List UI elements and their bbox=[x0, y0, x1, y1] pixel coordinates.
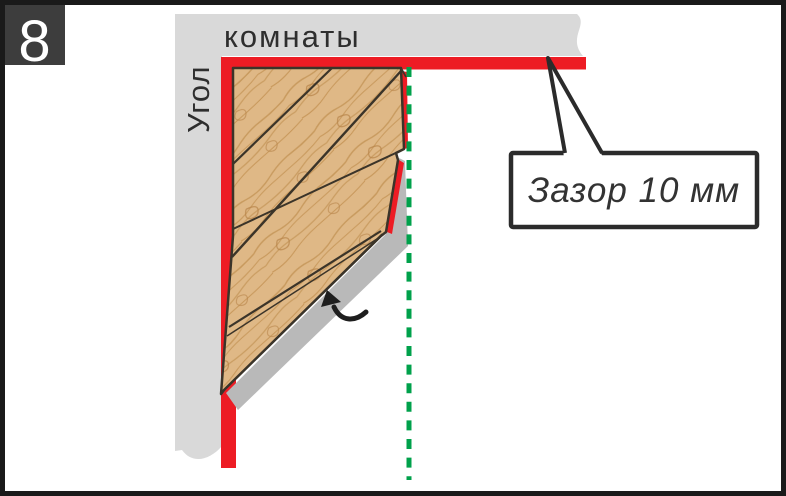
callout: Зазор 10 мм bbox=[511, 58, 757, 227]
wall-label-left: Угол bbox=[181, 65, 216, 133]
instruction-figure: комнаты Угол Зазор 10 мм bbox=[0, 0, 786, 496]
plank-surface bbox=[221, 68, 404, 394]
installation-diagram: комнаты Угол Зазор 10 мм bbox=[0, 0, 786, 496]
callout-text: Зазор 10 мм bbox=[528, 171, 740, 210]
wall-label-top: комнаты bbox=[224, 19, 361, 54]
laminate-plank bbox=[221, 68, 408, 394]
step-badge: 8 bbox=[4, 4, 65, 74]
step-number: 8 bbox=[18, 9, 50, 74]
